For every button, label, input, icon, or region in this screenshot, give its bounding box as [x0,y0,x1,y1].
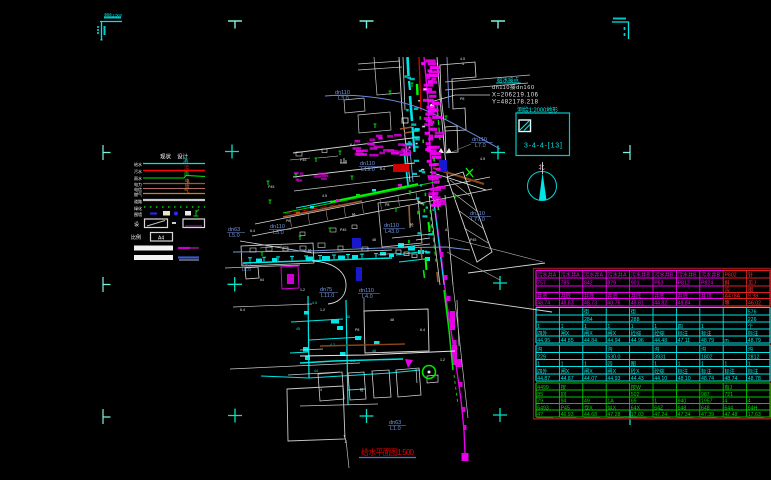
svg-text:288: 288 [631,317,640,323]
svg-text:1: 1 [631,324,634,330]
svg-text:44: 44 [314,369,318,373]
svg-text:48: 48 [372,238,376,242]
svg-text:45: 45 [296,327,300,331]
svg-text:785: 785 [561,281,570,287]
svg-text:沟: 沟 [537,345,542,353]
svg-text:L5.0: L5.0 [273,230,284,236]
svg-text:502: 502 [631,392,640,398]
svg-text:1: 1 [654,399,657,405]
svg-text:沟: 沟 [607,345,612,353]
svg-text:四外: 四外 [537,329,547,337]
svg-text:现状: 现状 [160,153,172,161]
svg-text:斜: 斜 [725,279,731,287]
svg-text:标注: 标注 [701,329,711,337]
svg-text:4: 4 [432,208,434,212]
svg-text:P45: P45 [470,238,476,242]
svg-text:49: 49 [584,399,590,405]
svg-text:污水井A: 污水井A [561,271,581,279]
svg-text:闸X: 闸X [561,329,570,337]
svg-text:图: 图 [631,360,636,367]
svg-text:3-4-4-[13]: 3-4-4-[13] [524,143,562,150]
svg-text:北: 北 [539,164,545,172]
svg-text:见J: 见J [748,280,756,287]
svg-text:砼综: 砼综 [631,329,642,337]
svg-text:1: 1 [584,324,587,330]
svg-text:L7.0: L7.0 [475,143,486,149]
svg-text:雨: 雨 [184,172,189,178]
svg-text:砼: 砼 [410,222,414,227]
svg-text:1: 1 [537,324,540,330]
svg-text:69: 69 [631,399,637,405]
svg-text:污水: 污水 [134,168,142,174]
svg-text:48: 48 [390,318,394,322]
svg-text:757: 757 [537,281,546,287]
svg-text:85: 85 [537,392,543,398]
svg-text:砼: 砼 [360,387,364,392]
svg-text:648: 648 [678,405,687,411]
svg-text:A4: A4 [158,236,164,242]
svg-text:P45: P45 [300,158,306,162]
svg-text:给水: 给水 [134,161,142,167]
svg-text:标注: 标注 [748,329,758,337]
svg-text:绿化: 绿化 [134,205,142,211]
svg-text:1: 1 [678,361,681,367]
svg-text:等: 等 [725,299,730,307]
svg-text:1: 1 [584,361,587,367]
svg-text:L5.0: L5.0 [229,233,240,239]
svg-text:污水井A: 污水井A [537,271,557,279]
svg-text:闸X: 闸X [607,367,616,375]
svg-text:3931: 3931 [654,354,666,360]
svg-text:P8: P8 [385,203,389,207]
svg-text:4.5: 4.5 [322,194,327,198]
svg-text:879: 879 [607,281,616,287]
svg-text:4.5: 4.5 [460,57,465,61]
svg-text:闸X: 闸X [584,367,593,375]
svg-text:比例: 比例 [131,234,141,241]
svg-text:伐X: 伐X [584,403,593,411]
svg-text:6.4: 6.4 [240,308,245,312]
svg-text:砼X: 砼X [631,367,640,375]
svg-text:48: 48 [346,315,350,319]
svg-text:沟: 沟 [748,345,753,353]
svg-text:P812: P812 [678,281,690,287]
svg-text:沟: 沟 [725,286,730,294]
svg-text:污水井A: 污水井A [584,271,604,279]
svg-text:1: 1 [701,324,704,330]
svg-text:79: 79 [537,399,543,405]
svg-text:1: 1 [701,361,704,367]
svg-text:个: 个 [748,323,754,330]
svg-text:94: 94 [561,399,567,405]
svg-text:似X: 似X [607,405,616,411]
svg-text:P824: P824 [701,281,713,287]
svg-text:街: 街 [584,308,589,316]
svg-text:污: 污 [184,165,189,172]
svg-text:530.0: 530.0 [607,354,620,360]
svg-text:1.2: 1.2 [300,288,305,292]
svg-text:燃气: 燃气 [134,191,142,197]
svg-text:284: 284 [584,317,593,323]
svg-text:按W: 按W [631,383,641,391]
svg-text:721: 721 [724,392,733,398]
svg-text:2812: 2812 [748,354,760,360]
svg-text:1: 1 [654,361,657,367]
svg-text:6.4: 6.4 [350,143,355,147]
svg-text:1.2: 1.2 [440,358,445,362]
svg-text:940: 940 [678,399,687,405]
svg-text:Y=482178.218: Y=482178.218 [492,100,539,106]
svg-text:街: 街 [631,308,636,316]
svg-text:648: 648 [701,405,710,411]
svg-text:四: 四 [607,360,612,367]
svg-text:4.5: 4.5 [312,301,317,305]
svg-text:226: 226 [748,317,757,323]
svg-text:842: 842 [584,281,593,287]
svg-text:标注: 标注 [678,329,688,337]
svg-text:1: 1 [607,324,610,330]
svg-text:消: 消 [183,158,188,165]
svg-text:四: 四 [678,323,683,330]
svg-text:987: 987 [701,392,710,398]
svg-text:P602: P602 [725,273,737,279]
svg-text:井底: 井底 [654,292,664,300]
svg-text:道路: 道路 [134,198,142,204]
svg-text:砼综: 砼综 [654,329,665,337]
svg-text:1: 1 [537,361,540,367]
svg-text:64: 64 [260,278,264,282]
svg-text:L4.0: L4.0 [362,294,373,300]
svg-text:四外: 四外 [537,367,547,375]
svg-text:1802: 1802 [701,354,713,360]
svg-text:P8: P8 [286,219,290,223]
svg-text:设: 设 [134,221,139,228]
svg-text:雨水: 雨水 [134,175,142,181]
svg-text:井底: 井底 [584,292,594,300]
svg-text:标注: 标注 [748,367,758,375]
svg-text:井底: 井底 [631,292,641,300]
svg-text:污水井B: 污水井B [654,271,674,279]
svg-text:测绘1:500: 测绘1:500 [104,12,123,18]
svg-text:砼: 砼 [352,212,356,217]
svg-text:有J: 有J [724,383,732,391]
svg-text:P45: P45 [561,405,570,411]
svg-text:229: 229 [537,354,546,360]
svg-text:L77.0: L77.0 [471,217,485,223]
svg-text:标注: 标注 [724,367,734,375]
svg-text:沟: 沟 [701,345,706,353]
svg-text:L1.0: L1.0 [242,267,251,272]
svg-text:井底: 井底 [607,292,617,300]
svg-text:64Z: 64Z [654,405,663,411]
svg-text:L3.0: L3.0 [338,96,349,102]
svg-text:L1.0: L1.0 [390,426,401,432]
svg-text:闸X: 闸X [584,329,593,337]
svg-text:4: 4 [748,399,751,405]
svg-text:64H: 64H [748,405,758,411]
svg-text:644: 644 [724,405,733,411]
svg-text:4: 4 [320,388,322,392]
svg-text:A478A: A478A [725,294,741,300]
svg-text:闸X: 闸X [607,329,616,337]
svg-text:1: 1 [561,324,564,330]
svg-text:闸X: 闸X [561,367,570,375]
svg-text:1A: 1A [607,399,614,405]
svg-text:X=206219.106: X=206219.106 [492,93,539,99]
svg-text:砼综: 砼综 [654,367,665,375]
svg-text:901: 901 [631,281,640,287]
svg-text:污水井B: 污水井B [701,271,721,279]
svg-text:污水井B: 污水井B [631,271,651,279]
svg-text:4: 4 [462,62,464,66]
svg-text:标注: 标注 [701,367,711,375]
svg-text:4: 4 [724,399,727,405]
svg-text:井顶: 井顶 [701,292,711,300]
svg-text:[0]: [0] [561,392,567,398]
svg-text:沟: 沟 [654,345,659,353]
svg-text:4.5: 4.5 [480,157,485,161]
svg-text:气: 气 [184,188,189,195]
svg-text:标注: 标注 [678,367,688,375]
svg-text:井底: 井底 [678,292,688,300]
svg-text:576: 576 [748,310,757,316]
svg-text:P8: P8 [460,97,464,101]
svg-text:1: 1 [654,324,657,330]
svg-text:1: 1 [724,361,727,367]
svg-text:6.4: 6.4 [250,229,255,233]
svg-text:1: 1 [748,361,751,367]
svg-text:P45: P45 [268,185,274,189]
svg-text:井底: 井底 [537,292,547,300]
svg-text:P93: P93 [654,281,663,287]
svg-text:砼: 砼 [308,248,312,253]
svg-text:L43.0: L43.0 [385,229,399,235]
svg-text:针: 针 [748,271,753,279]
svg-text:P45: P45 [340,228,346,232]
svg-text:6493: 6493 [537,405,549,411]
svg-text:1: 1 [561,361,564,367]
svg-text:1.2: 1.2 [320,308,325,312]
svg-text:P8: P8 [355,328,359,332]
svg-text:L11.0: L11.0 [321,293,334,299]
svg-text:9.98: 9.98 [748,294,758,300]
svg-text:井底: 井底 [561,292,571,300]
svg-text:围墙: 围墙 [134,211,142,217]
svg-text:64X: 64X [631,405,641,411]
svg-text:L19.0: L19.0 [361,167,375,173]
svg-text:给水平面图1:500: 给水平面图1:500 [361,447,415,457]
svg-text:图: 图 [748,287,753,294]
svg-text:污水井A: 污水井A [607,271,627,279]
svg-text:1957: 1957 [701,399,713,405]
svg-text:4499: 4499 [537,385,549,391]
svg-text:按: 按 [561,383,566,391]
svg-text:污水井B: 污水井B [678,271,698,279]
svg-text:6.4: 6.4 [380,167,385,171]
svg-text:6.4: 6.4 [420,328,425,332]
